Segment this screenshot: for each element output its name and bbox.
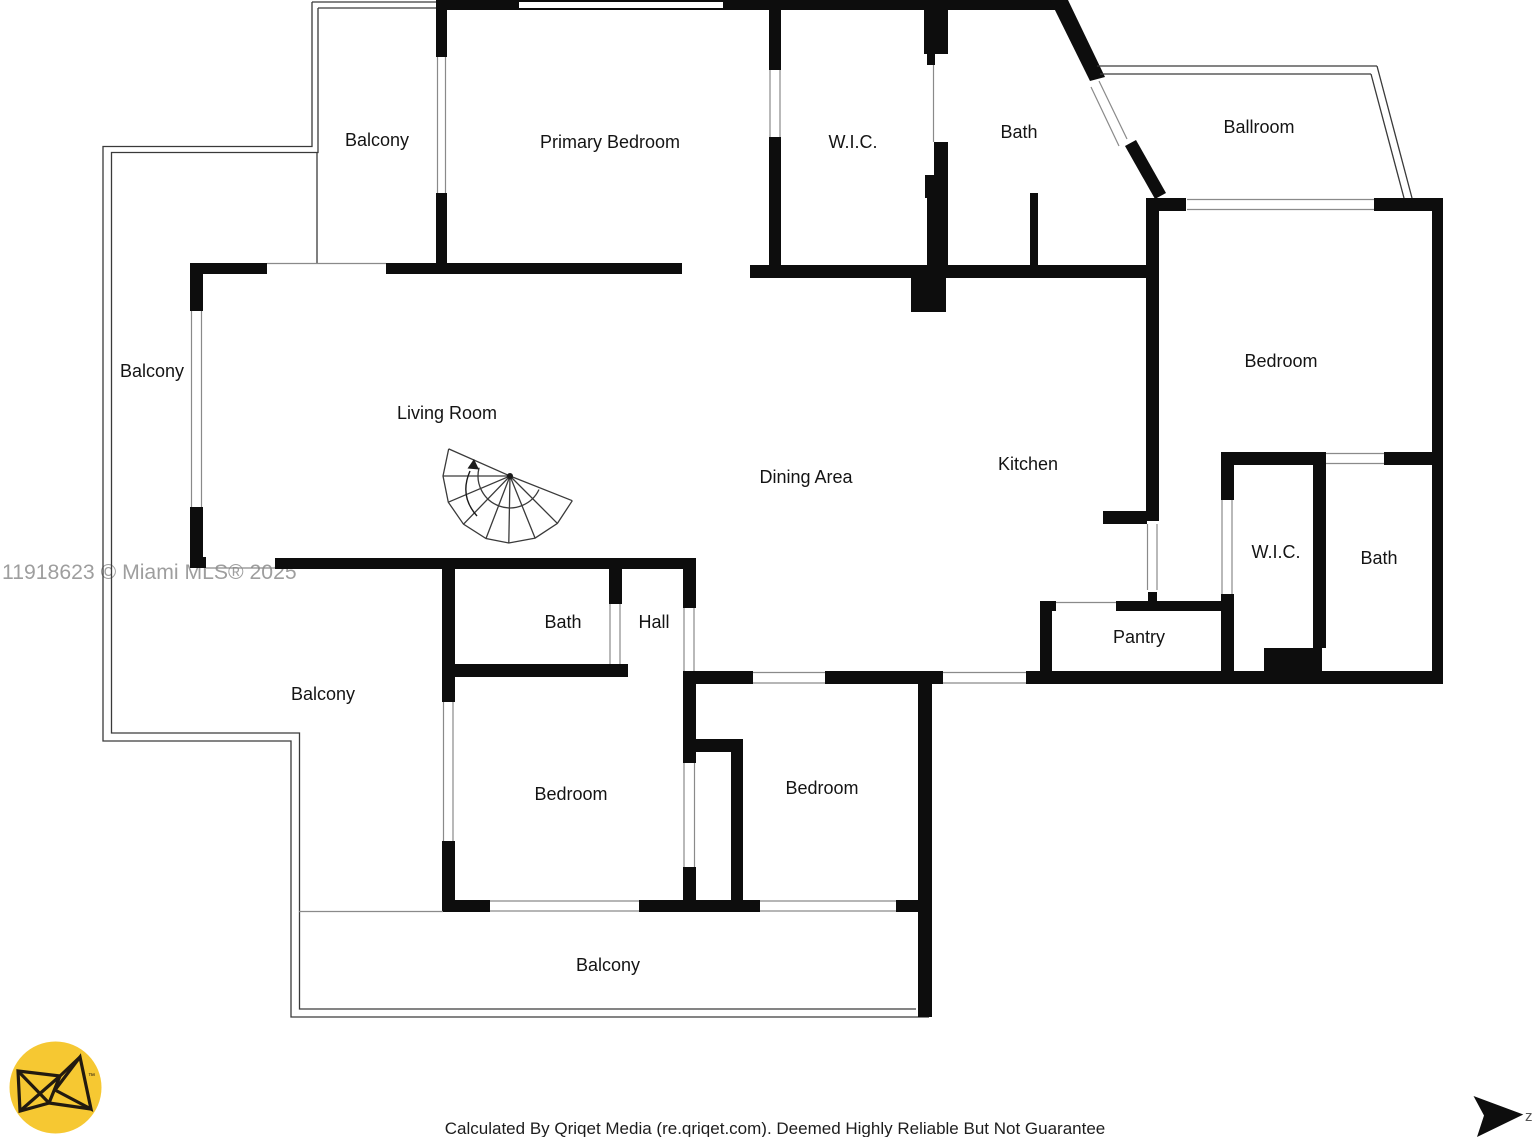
svg-text:Bedroom: Bedroom: [534, 784, 607, 804]
svg-text:z: z: [1525, 1108, 1533, 1125]
svg-text:Ballroom: Ballroom: [1223, 117, 1294, 137]
svg-text:W.I.C.: W.I.C.: [829, 132, 878, 152]
svg-text:Hall: Hall: [638, 612, 669, 632]
svg-text:Bedroom: Bedroom: [785, 778, 858, 798]
svg-text:Bath: Bath: [544, 612, 581, 632]
svg-text:Primary Bedroom: Primary Bedroom: [540, 132, 680, 152]
svg-text:Balcony: Balcony: [291, 684, 355, 704]
svg-text:Dining Area: Dining Area: [759, 467, 853, 487]
svg-text:Pantry: Pantry: [1113, 627, 1165, 647]
svg-text:Calculated By Qriqet Media (re: Calculated By Qriqet Media (re.qriqet.co…: [445, 1119, 1105, 1137]
svg-text:Bath: Bath: [1000, 122, 1037, 142]
svg-text:Balcony: Balcony: [120, 361, 184, 381]
svg-text:Bath: Bath: [1360, 548, 1397, 568]
svg-text:W.I.C.: W.I.C.: [1252, 542, 1301, 562]
svg-text:™: ™: [88, 1073, 95, 1080]
svg-text:Balcony: Balcony: [345, 130, 409, 150]
svg-text:Kitchen: Kitchen: [998, 454, 1058, 474]
svg-text:Bedroom: Bedroom: [1244, 351, 1317, 371]
svg-text:Living Room: Living Room: [397, 403, 497, 423]
svg-text:Balcony: Balcony: [576, 955, 640, 975]
svg-text:11918623 © Miami MLS® 2025: 11918623 © Miami MLS® 2025: [2, 561, 297, 584]
